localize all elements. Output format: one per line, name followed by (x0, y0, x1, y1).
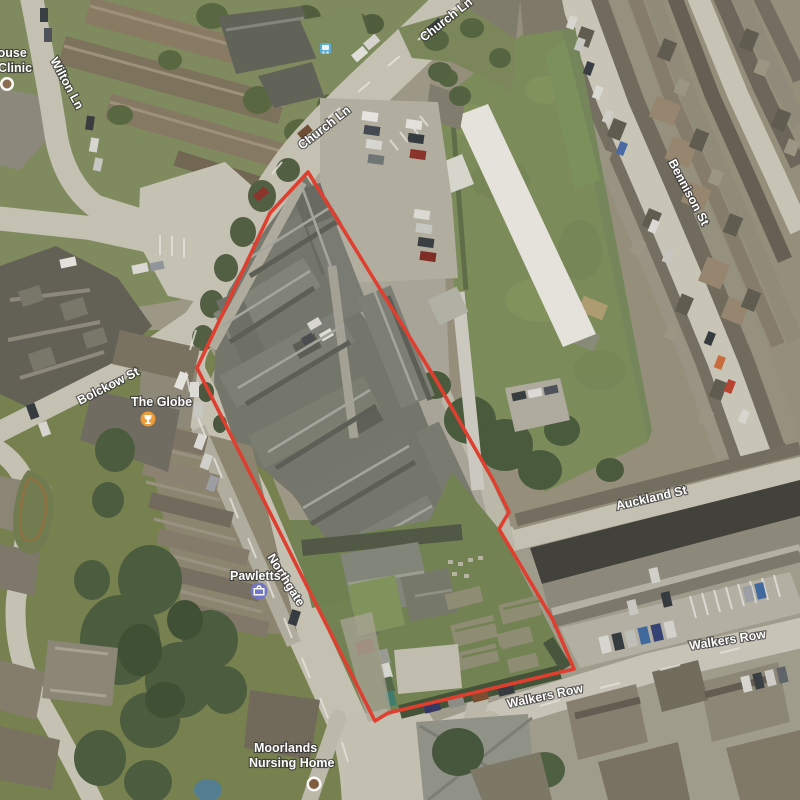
svg-text:house: house (0, 46, 27, 60)
svg-text:The Globe: The Globe (131, 395, 192, 409)
svg-text:Clinic: Clinic (0, 61, 32, 75)
svg-text:Nursing Home: Nursing Home (249, 756, 334, 770)
svg-text:Pawletts: Pawletts (230, 569, 281, 583)
svg-text:Moorlands: Moorlands (254, 741, 317, 755)
